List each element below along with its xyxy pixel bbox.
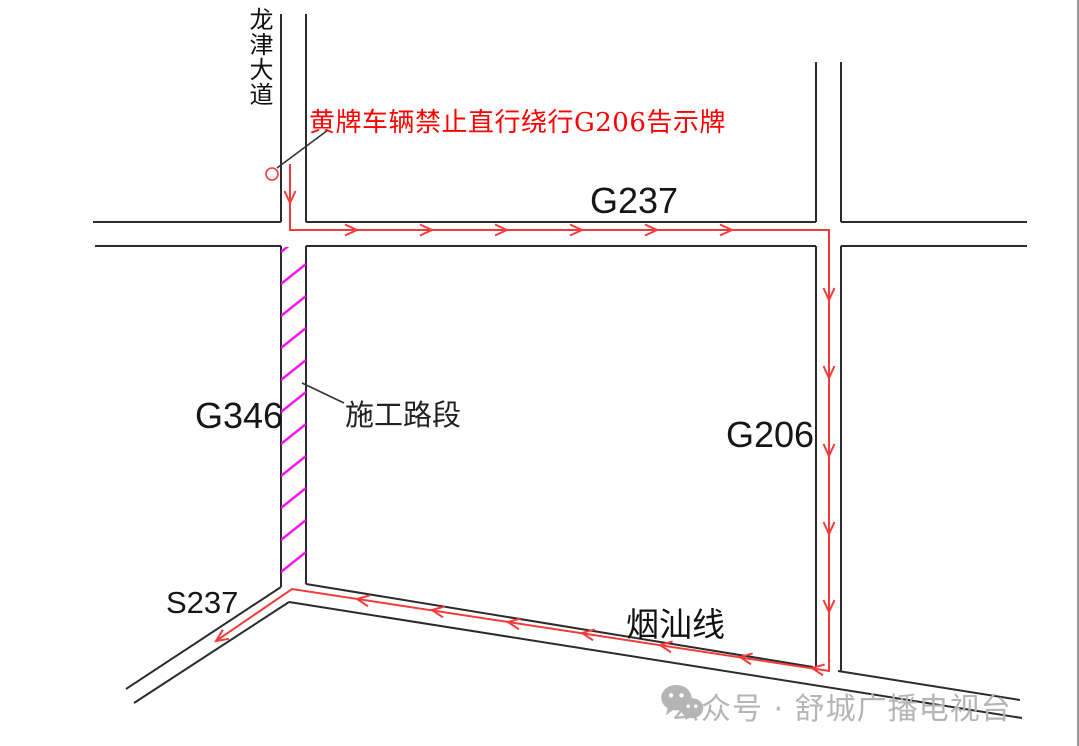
label-construction-section: 施工路段 xyxy=(345,392,461,434)
construction-hatch xyxy=(281,232,306,604)
hatch-line xyxy=(281,456,306,476)
label-g346: G346 xyxy=(195,395,283,437)
hatch-line xyxy=(281,392,306,412)
watermark-text: 公众号 · 舒城广播电视台 xyxy=(670,684,1012,728)
traffic-detour-map: 龙津大道 黄牌车辆禁止直行绕行G206告示牌 G237 G346 施工路段 G2… xyxy=(0,0,1079,746)
hatch-line xyxy=(281,520,306,540)
hatch-line xyxy=(281,488,306,508)
label-s237: S237 xyxy=(166,585,238,621)
hatch-line xyxy=(281,296,306,316)
label-g206: G206 xyxy=(726,414,814,456)
label-notice-yellow-plate: 黄牌车辆禁止直行绕行G206告示牌 xyxy=(309,102,726,139)
label-g237: G237 xyxy=(590,180,678,222)
hatch-line xyxy=(281,424,306,444)
hatch-line xyxy=(281,328,306,348)
label-longjin-avenue: 龙津大道 xyxy=(246,7,271,107)
hatch-line xyxy=(281,232,306,252)
label-yanshan-line: 烟汕线 xyxy=(626,598,725,646)
hatch-line xyxy=(281,552,306,572)
hatch-line xyxy=(281,360,306,380)
construction-leader-line xyxy=(302,383,344,403)
notice-marker-circle xyxy=(266,168,278,180)
road-yanshan-top xyxy=(306,584,813,667)
leader-lines xyxy=(277,130,344,403)
watermark: 公众号 · 舒城广播电视台 xyxy=(660,684,1012,728)
hatch-line xyxy=(281,264,306,284)
